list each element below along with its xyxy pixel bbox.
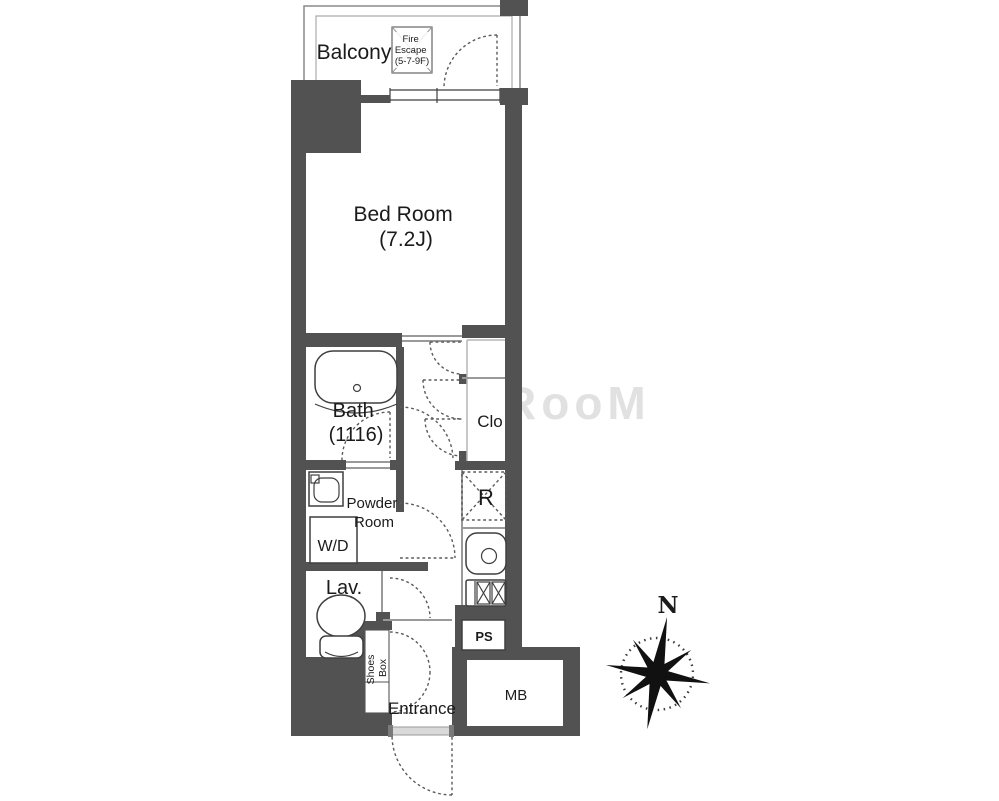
- lavatory-label: Lav.: [326, 577, 362, 599]
- closet-door-arc-1: [430, 342, 462, 374]
- washbasin-icon: [309, 472, 343, 506]
- wall-bath-bottom-a: [291, 460, 346, 470]
- entrance-door-slab: [388, 725, 454, 737]
- fire-escape-hatch-icon: Fire Escape (5-7-9F): [392, 27, 432, 73]
- fire-escape-line1: Fire: [402, 34, 418, 45]
- compass-rose-icon: N: [588, 592, 726, 743]
- fire-escape-line3: (5-7-9F): [395, 56, 429, 67]
- powder-room-label: Powder Room: [346, 495, 401, 531]
- wall-shoes-bottom: [342, 713, 392, 726]
- wall-kitchen-bottom: [455, 605, 522, 620]
- balcony-pillar: [500, 0, 528, 16]
- pipe-space-label: PS: [475, 629, 493, 644]
- washer-dryer-label: W/D: [317, 538, 348, 555]
- wall-bedroom-bath: [291, 333, 402, 347]
- wall-right: [505, 105, 522, 655]
- entrance-label: Entrance: [388, 699, 456, 718]
- bath-label: Bath (1116): [329, 400, 384, 446]
- lav-door-arc: [390, 578, 430, 618]
- meter-box-label: MB: [505, 687, 528, 704]
- bedroom-label: Bed Room (7.2J): [353, 203, 458, 251]
- wall-mb-right: [563, 647, 580, 736]
- closet-label: Clo: [477, 412, 503, 431]
- wall-right-pillar: [500, 88, 528, 105]
- floor-plan-drawing: RooM Balcony Fire Escape (5-7-9F): [0, 0, 999, 801]
- stove-icon: [466, 580, 506, 606]
- toilet-icon: [317, 595, 365, 658]
- wall-under-lav: [291, 657, 342, 736]
- powder-door-arc: [400, 503, 455, 558]
- balcony-label: Balcony: [317, 41, 392, 64]
- bedroom-window: [390, 88, 500, 103]
- floor-plan-page: RooM Balcony Fire Escape (5-7-9F): [0, 0, 999, 801]
- kitchen-sink-icon: [466, 533, 506, 574]
- closet-door-arc-3: [425, 419, 462, 456]
- wall-lav-door-stub: [376, 612, 390, 624]
- balcony-door-arc: [444, 35, 497, 88]
- wall-bath-bottom-b: [390, 460, 404, 470]
- closet-door-arc-2: [423, 380, 462, 419]
- fire-escape-line2: Escape: [395, 45, 427, 56]
- entrance-door-arc: [392, 735, 452, 795]
- balcony-area: Balcony Fire Escape (5-7-9F): [304, 0, 528, 88]
- compass-north-label: N: [657, 592, 678, 619]
- wall-closet-bottom: [455, 461, 522, 470]
- wall-mb-bottom: [452, 726, 580, 736]
- wall-bath-right: [396, 347, 404, 460]
- refrigerator-label: R: [478, 485, 494, 510]
- wall-ps-left: [455, 620, 462, 650]
- wall-mb-left: [452, 647, 467, 736]
- shoes-door-arc-1: [390, 632, 430, 672]
- watermark-text: RooM: [503, 377, 651, 429]
